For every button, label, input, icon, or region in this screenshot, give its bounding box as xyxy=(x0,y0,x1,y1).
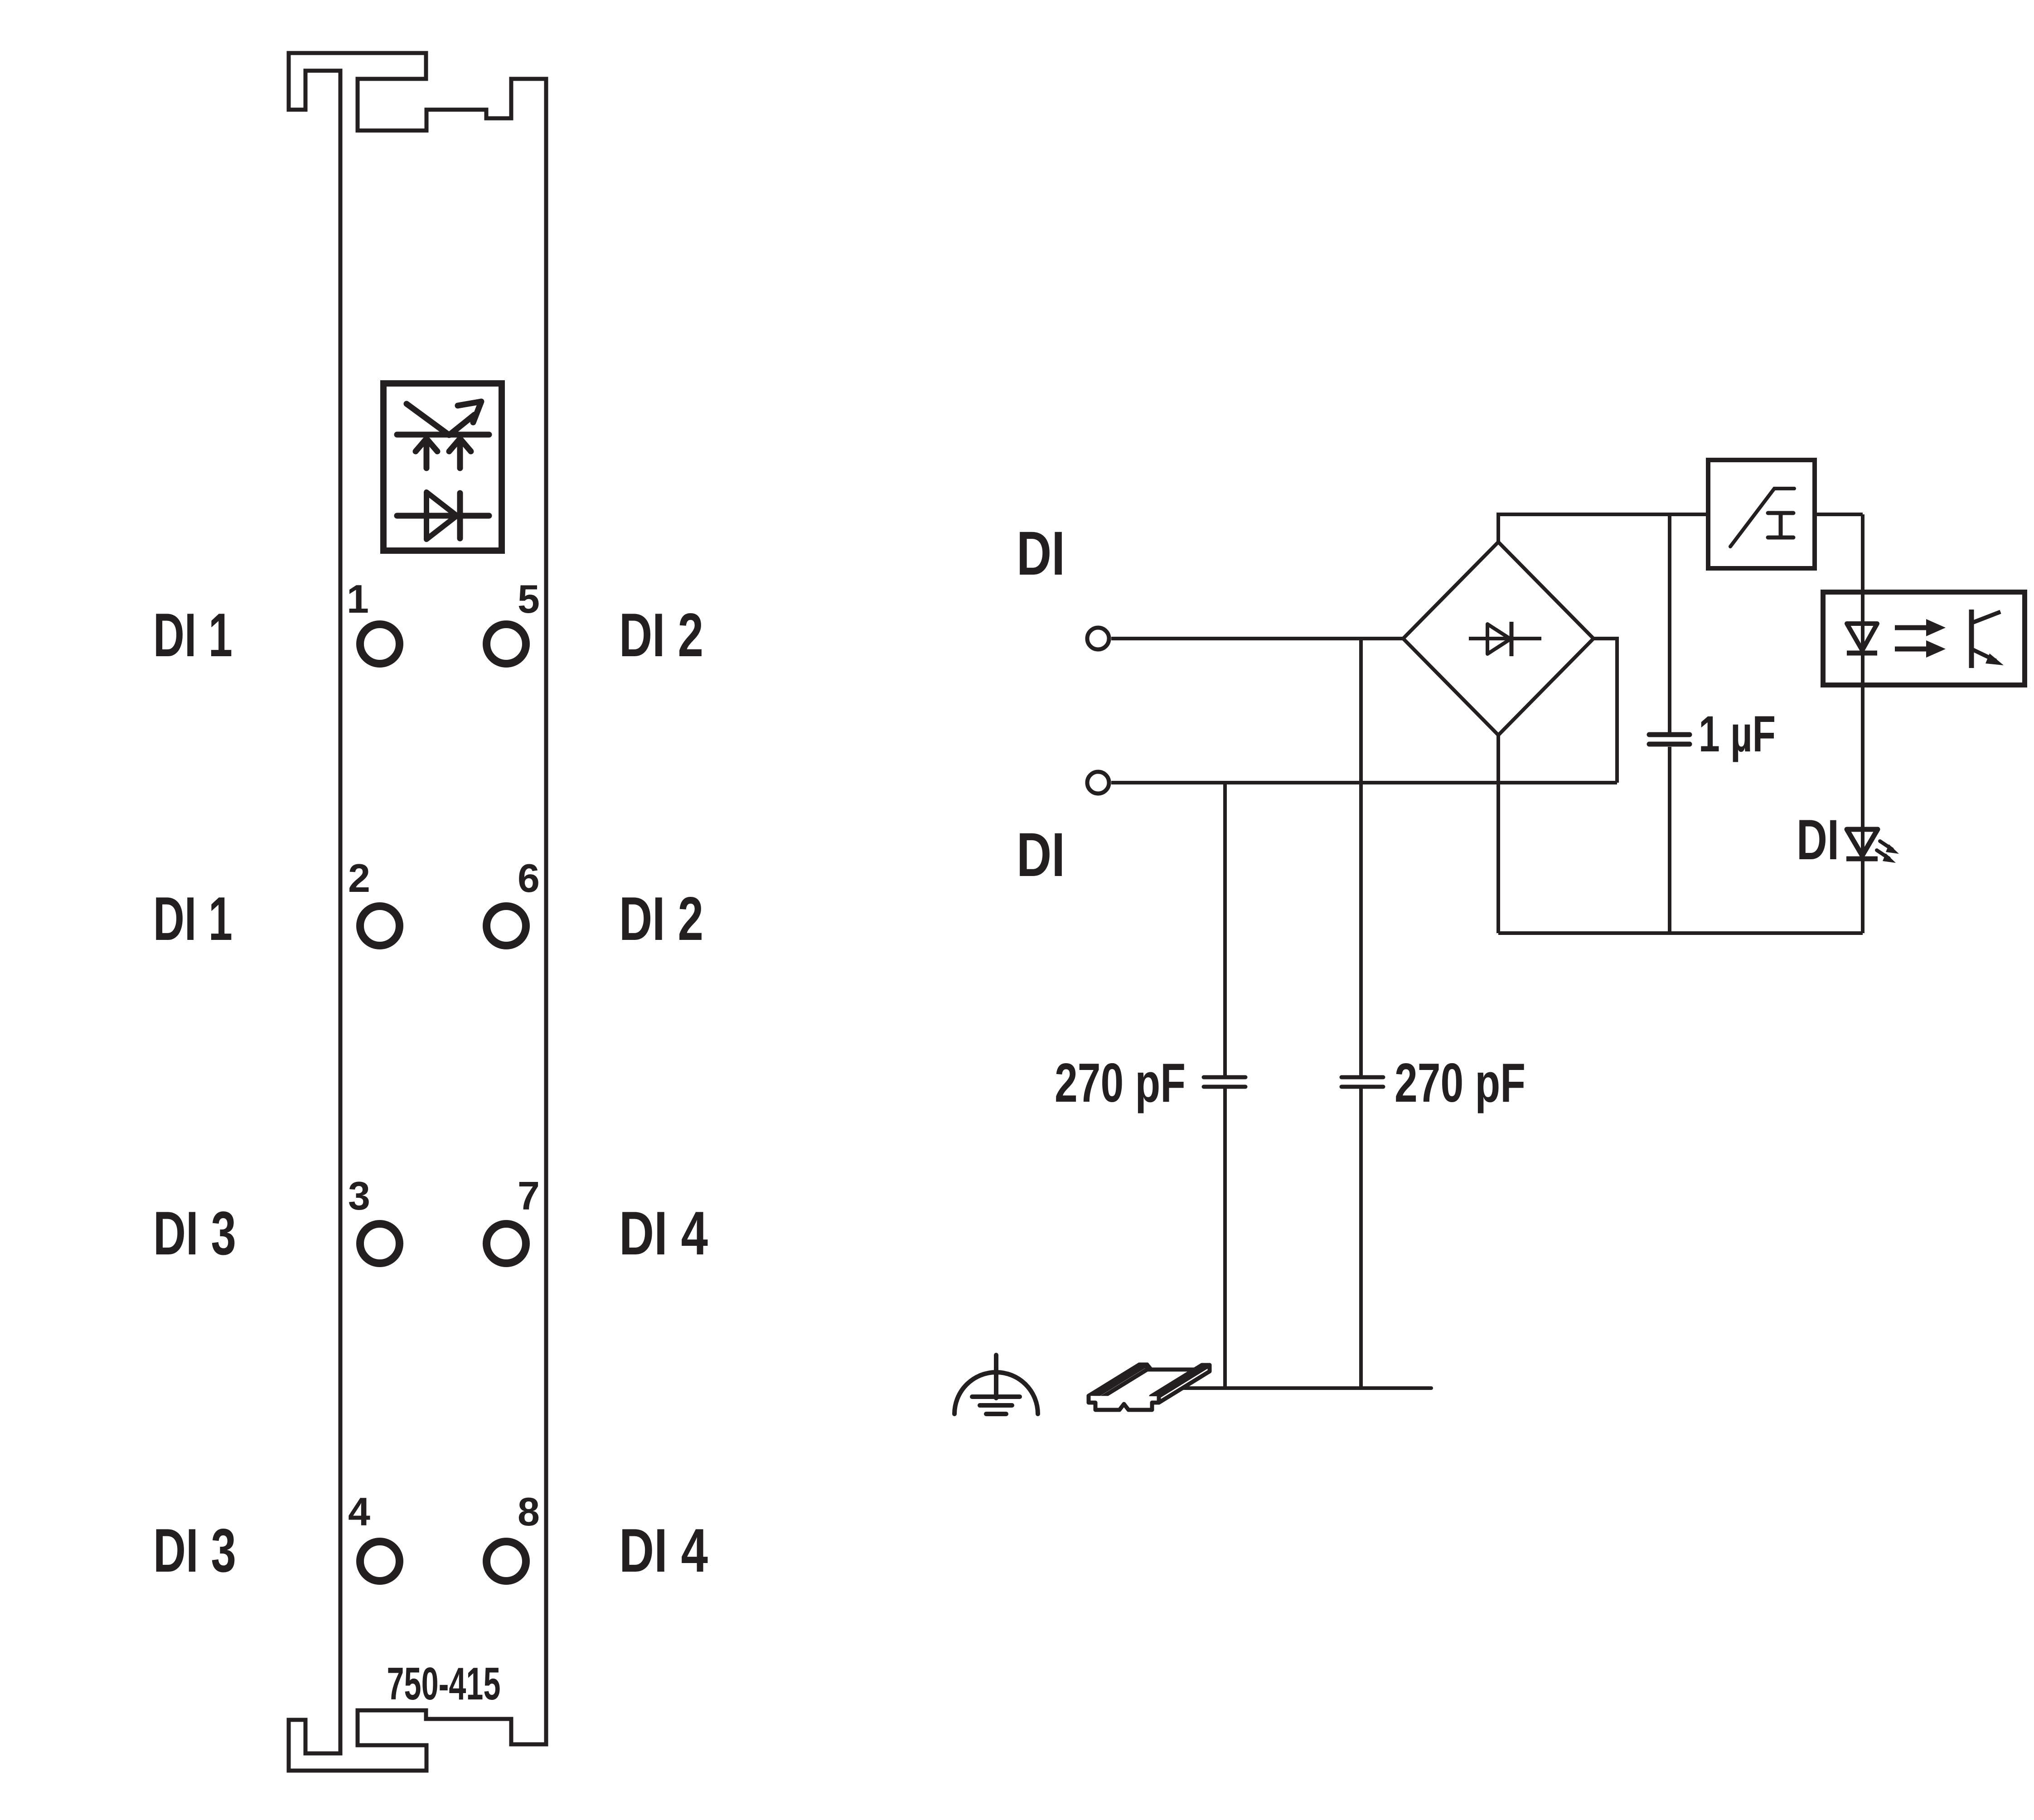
svg-text:6: 6 xyxy=(518,856,540,900)
svg-text:DI 2: DI 2 xyxy=(619,600,703,669)
svg-text:7: 7 xyxy=(518,1173,540,1218)
svg-text:DI 3: DI 3 xyxy=(153,1199,236,1268)
svg-text:DI 4: DI 4 xyxy=(619,1199,708,1268)
svg-text:DI 1: DI 1 xyxy=(153,884,232,953)
svg-text:270 pF: 270 pF xyxy=(1055,1052,1186,1113)
svg-text:5: 5 xyxy=(518,576,540,621)
svg-text:3: 3 xyxy=(348,1173,370,1218)
svg-text:2: 2 xyxy=(348,856,370,900)
svg-text:4: 4 xyxy=(348,1489,370,1534)
svg-text:DI: DI xyxy=(1017,820,1065,890)
svg-text:DI 1: DI 1 xyxy=(153,600,232,669)
svg-text:DI: DI xyxy=(1797,808,1839,871)
svg-text:270 pF: 270 pF xyxy=(1395,1052,1525,1113)
svg-text:1 µF: 1 µF xyxy=(1699,706,1776,762)
svg-text:DI 2: DI 2 xyxy=(619,884,703,953)
svg-text:1: 1 xyxy=(347,576,369,621)
svg-text:8: 8 xyxy=(518,1489,540,1534)
svg-text:DI 4: DI 4 xyxy=(619,1516,708,1585)
svg-text:750-415: 750-415 xyxy=(387,1659,501,1709)
svg-text:DI 3: DI 3 xyxy=(153,1516,236,1585)
svg-text:DI: DI xyxy=(1017,519,1065,588)
